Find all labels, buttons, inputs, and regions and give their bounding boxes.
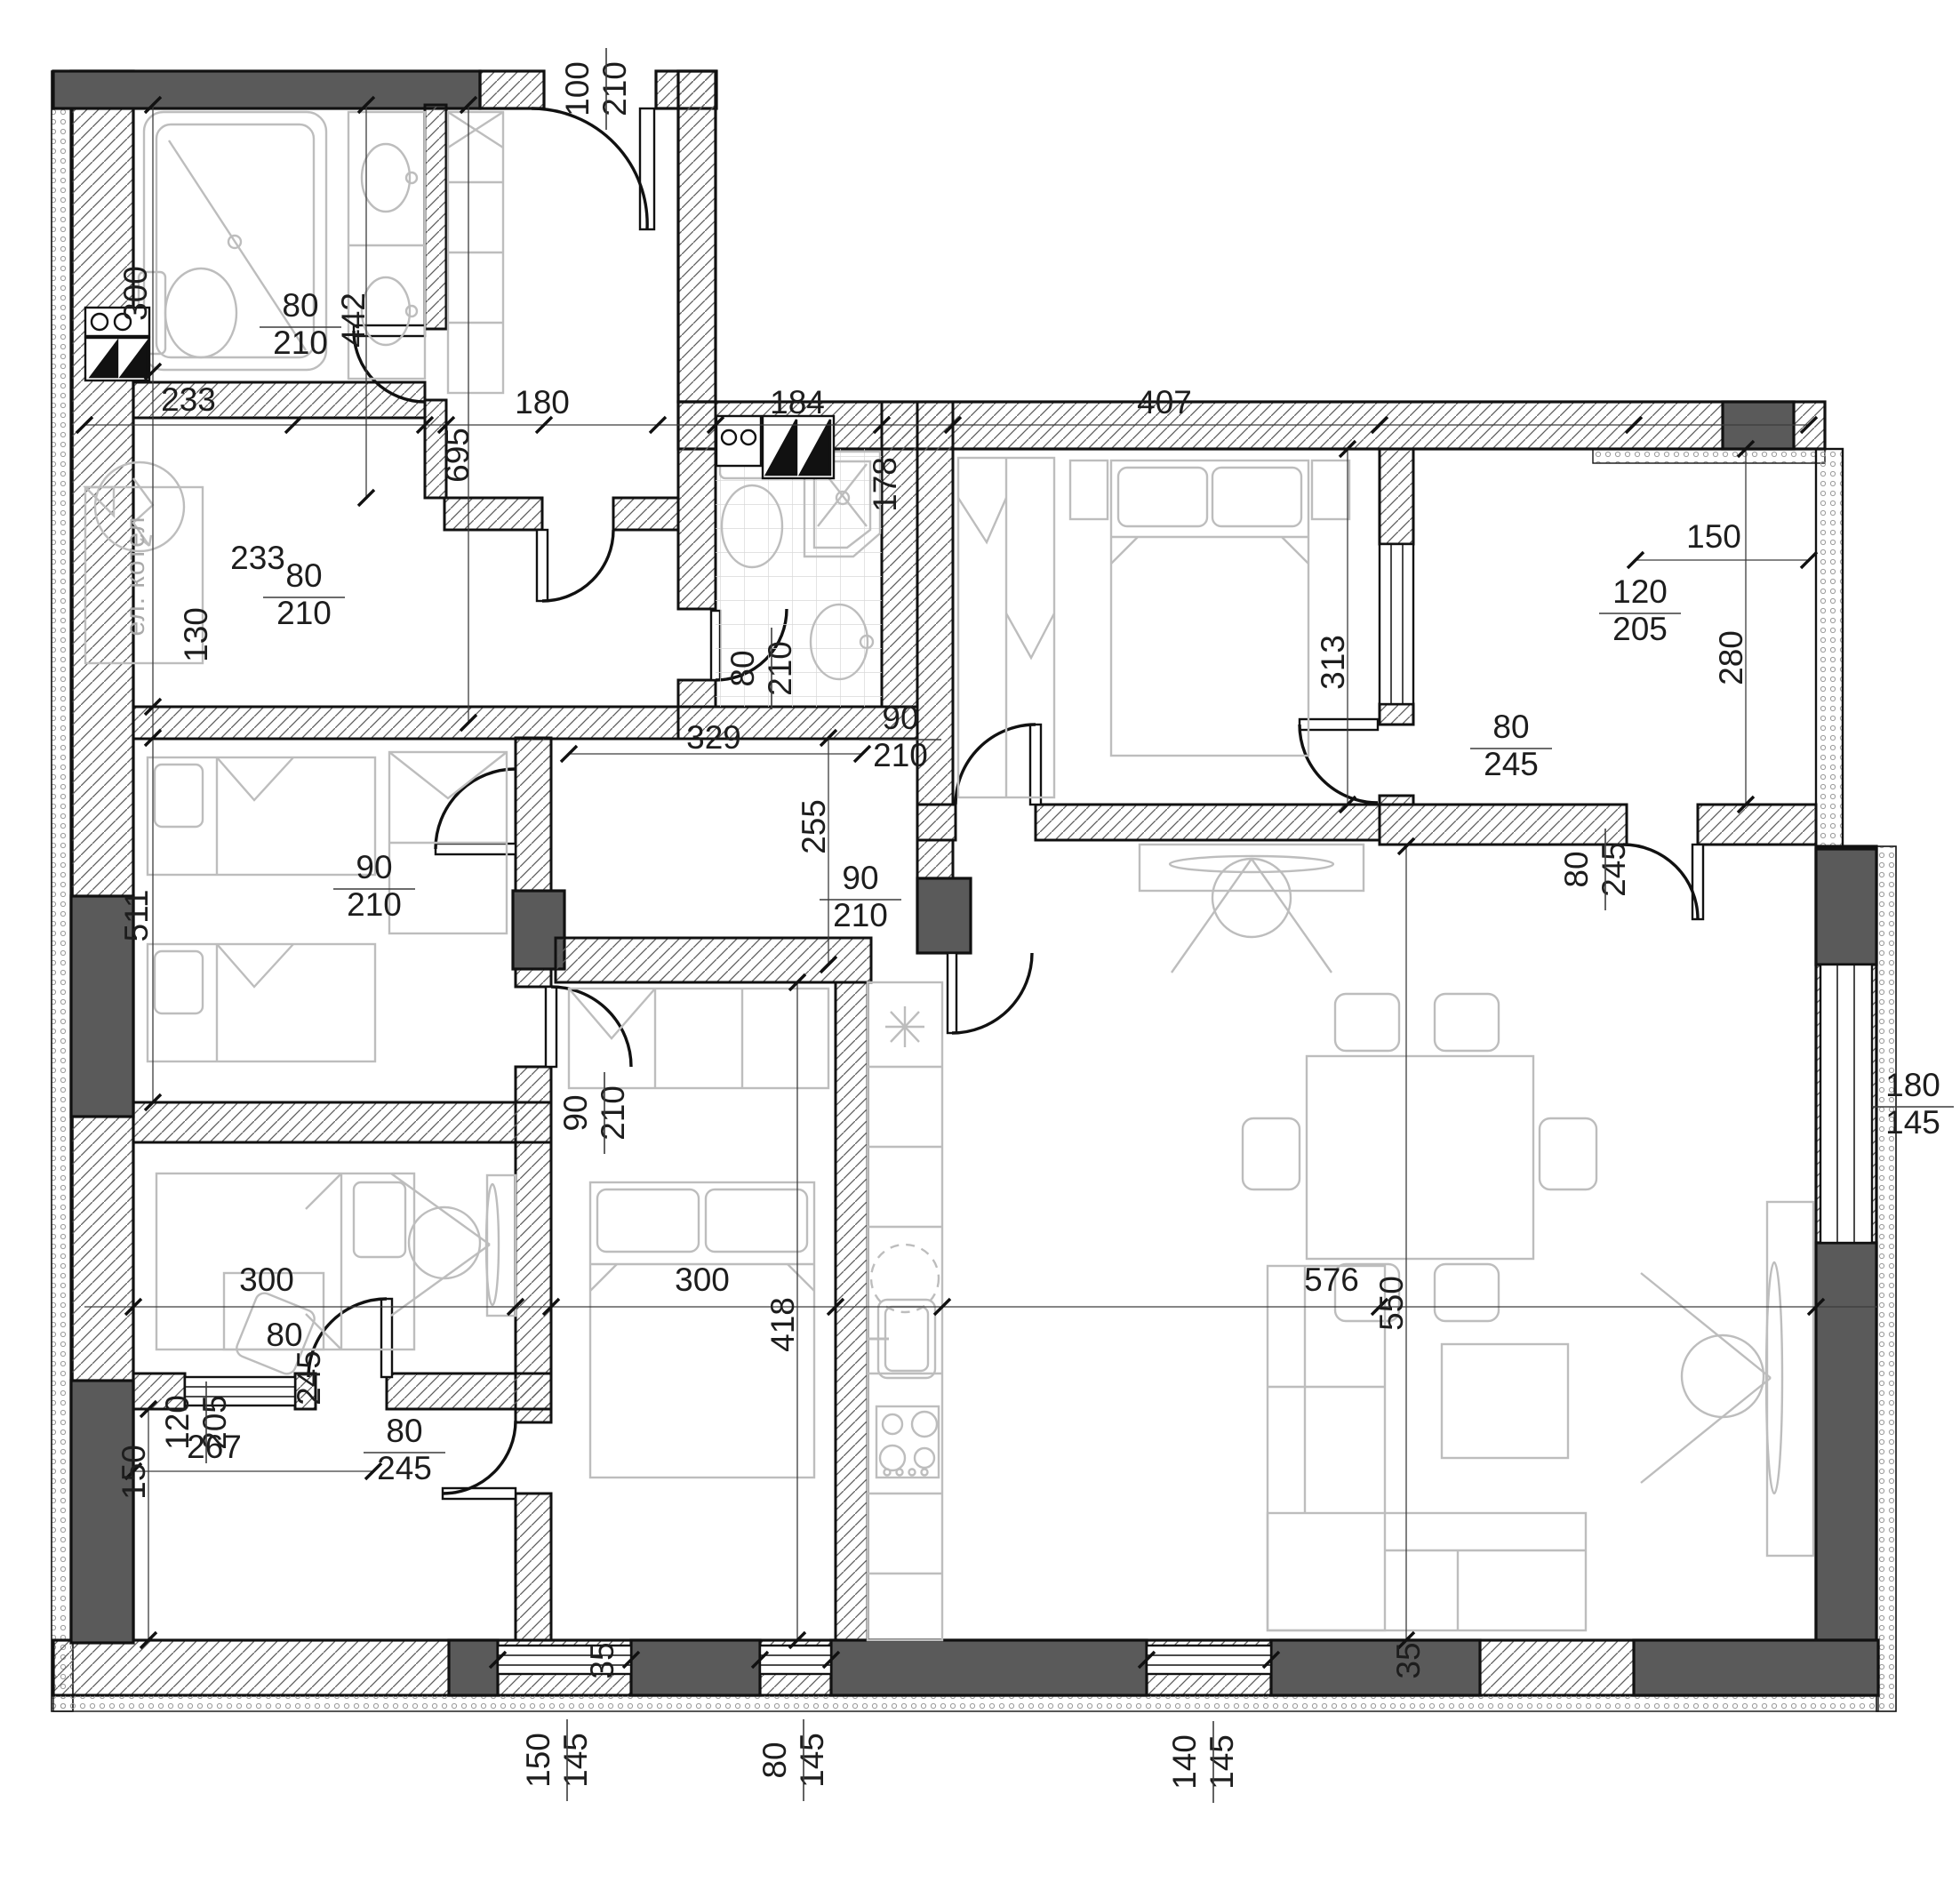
dimension-text: 210 <box>873 737 928 773</box>
bed-kids-2 <box>148 944 375 1061</box>
window-right-living <box>1820 965 1872 1243</box>
dimension-text: 90 <box>557 1094 594 1131</box>
dimension-text: 576 <box>1304 1261 1359 1298</box>
door-bedroom1-terrace <box>1300 719 1378 803</box>
wall-right-insulation <box>1876 846 1896 1711</box>
wall-terrace-south-a <box>1380 805 1627 845</box>
door-boiler <box>537 530 613 601</box>
wall-bedroom3-south-c <box>387 1373 551 1409</box>
window-bottom-3 <box>1147 1646 1271 1674</box>
wall-bottom-insulation <box>53 1695 1878 1711</box>
wall-bedroom1-south-a <box>917 805 956 840</box>
dimension-text: 145 <box>557 1733 594 1788</box>
structural-piers <box>71 402 1878 1695</box>
kitchen-counter <box>868 982 942 1640</box>
dimension-text: 120 <box>1612 573 1668 610</box>
wall-kids-north <box>133 707 678 739</box>
pier-left-low <box>71 1381 133 1643</box>
dimension-text: 180 <box>1885 1067 1940 1103</box>
dimension-text: 210 <box>595 1085 631 1141</box>
wall-terrace-divider-b <box>1380 704 1413 725</box>
dimension-text: 210 <box>276 595 332 631</box>
dimension-text: 205 <box>1612 611 1668 647</box>
wall-kitchen-west <box>836 982 868 1640</box>
dimension-text: 245 <box>1484 746 1539 782</box>
wall-terrace-divider-a <box>1380 449 1413 544</box>
dimension-text: 150 <box>520 1733 556 1788</box>
dimension-text: 511 <box>118 890 155 942</box>
wardrobe-hall <box>448 112 503 393</box>
dimension-text: 90 <box>882 700 918 736</box>
door-bedroom2 <box>546 987 631 1067</box>
wall-junction-stub <box>917 840 953 878</box>
dimension-text: 100 <box>559 61 596 116</box>
floor-plan-page: 2333004422331301806951841783292554073131… <box>0 0 1960 1890</box>
dimension-text: 255 <box>796 799 832 854</box>
pier-bottom-5 <box>1634 1640 1878 1695</box>
door-bedroom2-balcony <box>443 1421 516 1499</box>
wall-hall-south-a <box>444 498 542 530</box>
tv-bench-living-north <box>1140 845 1364 973</box>
pier-bottom-2 <box>631 1640 760 1695</box>
door-entry <box>532 108 654 229</box>
dimension-text: 35 <box>584 1642 620 1678</box>
dimension-text: 80 <box>724 650 761 686</box>
dimension-text: 407 <box>1137 384 1192 420</box>
dimension-text: 329 <box>686 719 741 756</box>
dimension-text: 180 <box>515 384 570 420</box>
wall-bath2-east <box>882 402 917 707</box>
door-living-room <box>948 953 1032 1033</box>
dimension-text: 80 <box>282 287 318 324</box>
dimension-text: 150 <box>116 1445 152 1500</box>
dimension-text: 233 <box>230 540 285 576</box>
dimension-text: 90 <box>356 849 392 885</box>
wall-bath1-east-a <box>425 105 446 329</box>
dimension-text: 210 <box>762 641 798 696</box>
wall-kids-east-b <box>516 969 551 987</box>
dimension-text: 145 <box>1204 1734 1240 1790</box>
dimension-text: 145 <box>794 1733 830 1788</box>
wall-bath2-west-a <box>678 402 716 609</box>
bed-kids-1 <box>148 757 375 875</box>
dimension-labels: 2333004422331301806951841783292554073131… <box>116 48 1954 1803</box>
wall-bedroom3-north <box>133 1102 551 1142</box>
pier-bottom-4 <box>1271 1640 1480 1695</box>
dimension-text: 210 <box>833 897 888 933</box>
wall-hall-south-b <box>613 498 678 530</box>
floor-plan: 2333004422331301806951841783292554073131… <box>0 0 1960 1890</box>
dimension-text: 210 <box>347 886 402 923</box>
wall-bedroom1-south-b <box>1036 805 1380 840</box>
dimension-text: 210 <box>596 61 633 116</box>
door-kids-room <box>436 769 516 854</box>
wardrobe-kids <box>389 752 507 933</box>
dimension-text: 80 <box>1558 851 1595 887</box>
dimension-text: 90 <box>842 860 878 896</box>
window-bedroom1-terrace <box>1380 544 1413 704</box>
dimension-text: 145 <box>1885 1104 1940 1141</box>
closet-bedroom2 <box>569 989 828 1088</box>
wall-top-party <box>53 71 480 108</box>
dimension-text: 80 <box>285 557 322 594</box>
dimension-text: 140 <box>1166 1734 1203 1790</box>
wall-bath2-west-b <box>678 680 716 707</box>
wall-kids-east-a <box>516 738 551 891</box>
dimension-text: 418 <box>764 1297 801 1352</box>
tv-bedroom3 <box>391 1173 516 1316</box>
dimension-text: 550 <box>1373 1276 1410 1331</box>
dimension-text: 442 <box>335 292 372 348</box>
dimension-text: 313 <box>1315 635 1351 690</box>
cooktop <box>876 1406 939 1478</box>
dimension-text: 280 <box>1713 630 1749 685</box>
wall-terrace-parapet-east <box>1816 449 1843 846</box>
pier-right-upper <box>1816 849 1876 965</box>
dimension-text: 245 <box>291 1350 327 1405</box>
dimension-text: 130 <box>178 607 214 662</box>
dimension-text: 150 <box>1686 518 1741 555</box>
window-bottom-2 <box>760 1646 831 1674</box>
wall-terrace-insulation <box>1593 449 1825 463</box>
dimension-text: 80 <box>266 1317 302 1353</box>
dimension-text: 300 <box>117 266 154 321</box>
door-bedroom1 <box>956 725 1041 805</box>
boiler-room-label: ел. котел <box>121 517 150 637</box>
dimension-text: 205 <box>196 1395 233 1450</box>
wall-corridor-south <box>556 938 871 982</box>
dimension-text: 245 <box>1596 842 1632 897</box>
fridge-symbol <box>885 1006 924 1047</box>
dimension-text: 695 <box>439 428 476 483</box>
dimension-text: 178 <box>867 457 903 512</box>
dimension-text: 210 <box>273 324 328 361</box>
dimension-text: 233 <box>161 381 216 418</box>
dimension-text: 245 <box>377 1450 432 1486</box>
pier-bottom-3 <box>831 1640 1147 1695</box>
dimension-text: 80 <box>1492 709 1529 745</box>
pier-right-lower <box>1816 1243 1876 1640</box>
dimension-text: 184 <box>770 384 825 420</box>
dimension-text: 120 <box>159 1395 196 1450</box>
corner-sofa <box>1268 1266 1586 1630</box>
door-terrace-living <box>1623 845 1703 919</box>
dining-table <box>1243 994 1596 1321</box>
wall-hall-east <box>678 71 716 402</box>
tv-bench-living-east <box>1641 1202 1813 1556</box>
dimension-text: 80 <box>756 1742 793 1778</box>
pier-junction-east <box>917 878 971 953</box>
bed-bedroom1 <box>1070 460 1349 756</box>
dimension-text: 300 <box>239 1261 294 1298</box>
dimension-text: 300 <box>675 1261 730 1298</box>
wall-terrace-south-b <box>1698 805 1816 845</box>
wall-kids-east-d <box>516 1494 551 1640</box>
wall-top-hatch <box>480 71 544 108</box>
dimension-text: 80 <box>386 1413 422 1449</box>
dimension-text: 35 <box>1390 1642 1427 1678</box>
